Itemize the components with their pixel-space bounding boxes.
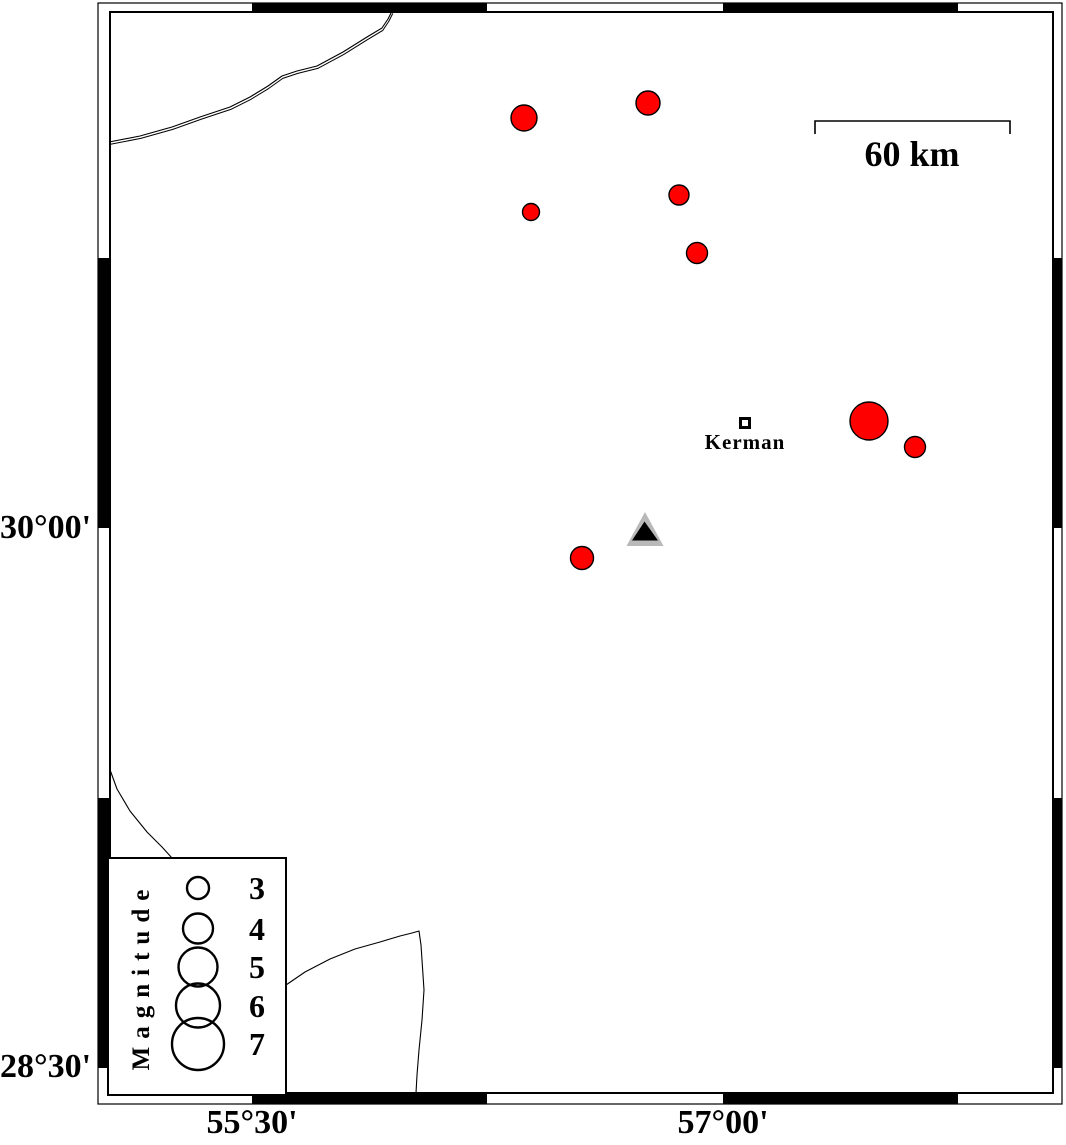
earthquake-marker-2: [523, 204, 540, 221]
lat-label-30-00: 30°00': [0, 506, 88, 550]
earthquake-marker-4: [687, 243, 708, 264]
fault-line-northwest-twin: [110, 13, 393, 144]
lon-label-55-30: 55°30': [162, 1101, 342, 1145]
legend-mag-label-7: 7: [235, 1023, 279, 1065]
fault-line-south-ridge: [286, 931, 424, 1093]
legend-mag-label-5: 5: [235, 946, 279, 988]
lat-label-28-30: 28°30': [0, 1045, 88, 1089]
seismicity-map-figure: 30°00' 28°30' 55°30' 57°00' 60 km Kerman…: [0, 0, 1066, 1145]
lon-label-57-00: 57°00': [633, 1101, 813, 1145]
frame-right-black-0: [1053, 258, 1062, 528]
fault-line-northwest: [109, 11, 392, 142]
scale-bar-label: 60 km: [812, 134, 1012, 174]
earthquake-marker-3: [669, 185, 689, 205]
frame-right-black-1: [1053, 798, 1062, 1068]
frame-top-black-0: [252, 3, 487, 12]
fault-line-southwest-upper: [109, 767, 172, 858]
scale-bar: [815, 121, 1010, 134]
legend-mag-label-4: 4: [235, 908, 279, 950]
legend-mag-label-3: 3: [235, 867, 279, 909]
legend-mag-label-6: 6: [235, 985, 279, 1027]
earthquake-marker-5: [850, 402, 888, 440]
frame-left-black-0: [98, 258, 110, 528]
frame-top-black-1: [723, 3, 958, 12]
legend-title-magnitude: Magnitude: [126, 861, 158, 1091]
earthquake-marker-7: [571, 547, 594, 570]
earthquake-marker-0: [511, 105, 537, 131]
city-marker-kerman: [741, 419, 750, 428]
city-label-kerman: Kerman: [665, 430, 825, 454]
earthquake-marker-6: [905, 437, 926, 458]
earthquake-marker-1: [636, 91, 660, 115]
